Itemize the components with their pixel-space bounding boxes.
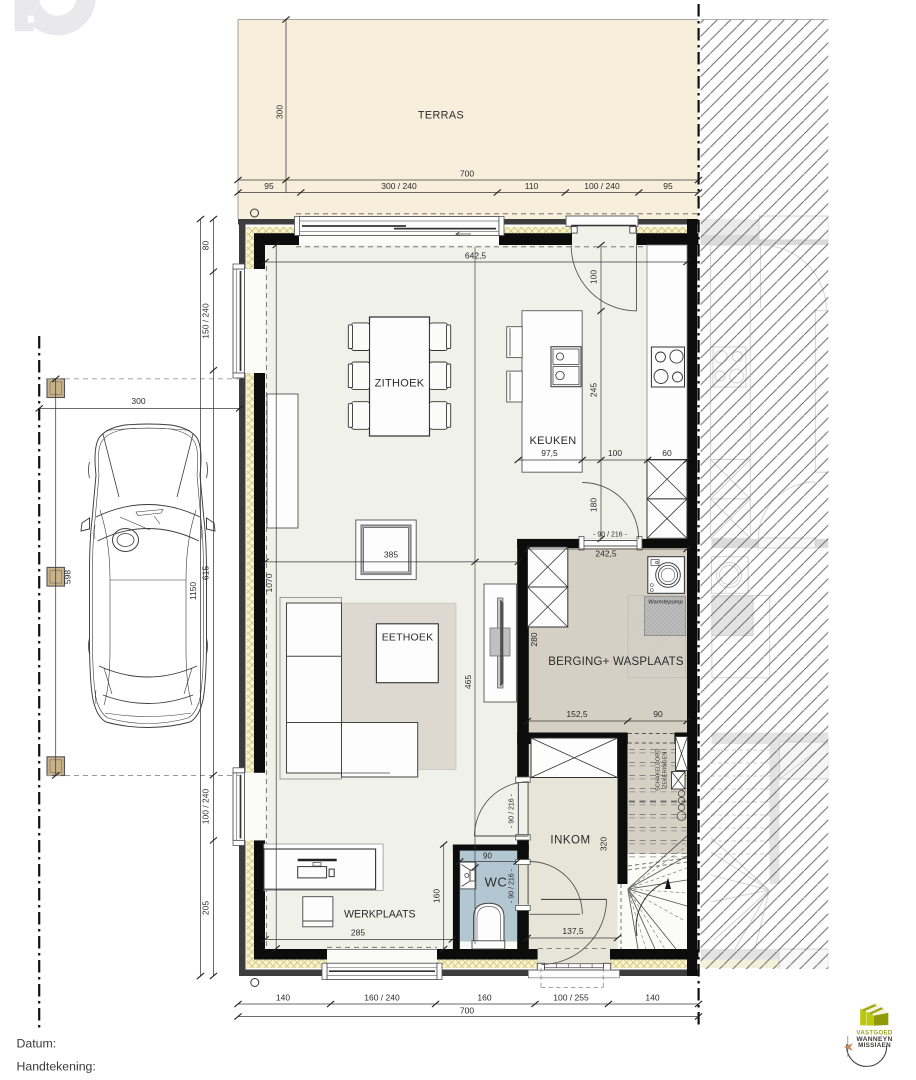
svg-text:160: 160 <box>431 889 441 903</box>
svg-text:700: 700 <box>460 1006 474 1016</box>
svg-text:150 / 240: 150 / 240 <box>201 303 211 339</box>
svg-text:300 / 240: 300 / 240 <box>381 181 417 191</box>
svg-text:615: 615 <box>201 566 211 580</box>
svg-text:465: 465 <box>463 675 473 689</box>
svg-text:205: 205 <box>201 901 211 915</box>
svg-text:700: 700 <box>460 169 474 179</box>
svg-text:140: 140 <box>276 993 290 1003</box>
svg-text:WC: WC <box>485 875 508 890</box>
svg-text:INKOM: INKOM <box>550 835 590 847</box>
svg-text:300: 300 <box>275 105 285 119</box>
svg-text:100 / 255: 100 / 255 <box>553 993 589 1003</box>
svg-text:180: 180 <box>589 498 599 512</box>
svg-text:160: 160 <box>477 993 491 1003</box>
svg-text:EETHOEK: EETHOEK <box>382 632 434 644</box>
svg-text:642,5: 642,5 <box>465 251 487 261</box>
svg-text:Handtekening:: Handtekening: <box>17 1060 96 1074</box>
svg-text:320: 320 <box>599 837 609 851</box>
svg-text:90: 90 <box>653 709 663 719</box>
svg-text:WERKPLAATS: WERKPLAATS <box>344 909 416 921</box>
svg-text:100 / 240: 100 / 240 <box>201 789 211 825</box>
svg-text:285: 285 <box>351 928 365 938</box>
svg-text:KEUKEN: KEUKEN <box>529 435 576 447</box>
svg-text:ZEKERINGEN: ZEKERINGEN <box>663 752 669 788</box>
svg-text:140: 140 <box>645 993 659 1003</box>
svg-text:- 90 / 216 -: - 90 / 216 - <box>509 868 516 903</box>
svg-text:100: 100 <box>608 448 622 458</box>
svg-text:137,5: 137,5 <box>562 926 584 936</box>
svg-text:280: 280 <box>529 632 539 646</box>
svg-text:Warmtepomp: Warmtepomp <box>648 600 683 606</box>
svg-text:598: 598 <box>63 570 73 584</box>
svg-text:- 90 / 216 -: - 90 / 216 - <box>593 532 628 539</box>
svg-text:ZITHOEK: ZITHOEK <box>375 378 425 390</box>
svg-text:100: 100 <box>589 270 599 284</box>
svg-text:245: 245 <box>589 383 599 397</box>
svg-text:385: 385 <box>384 550 398 560</box>
svg-text:160 / 240: 160 / 240 <box>364 993 400 1003</box>
svg-text:- 90 / 216 -: - 90 / 216 - <box>509 793 516 828</box>
svg-text:1150: 1150 <box>188 582 198 601</box>
svg-text:TERRAS: TERRAS <box>418 110 464 122</box>
svg-text:95: 95 <box>264 181 274 191</box>
svg-text:300: 300 <box>131 396 145 406</box>
svg-text:110: 110 <box>525 181 539 191</box>
svg-text:152,5: 152,5 <box>566 709 588 719</box>
svg-text:100 / 240: 100 / 240 <box>584 181 620 191</box>
svg-text:95: 95 <box>663 181 673 191</box>
svg-text:60: 60 <box>662 448 672 458</box>
svg-text:SCHAKELBORD: SCHAKELBORD <box>656 749 662 791</box>
svg-text:242,5: 242,5 <box>595 549 617 559</box>
svg-text:97,5: 97,5 <box>541 448 558 458</box>
svg-text:BERGING+ WASPLAATS: BERGING+ WASPLAATS <box>548 656 684 668</box>
svg-text:1070: 1070 <box>264 573 274 592</box>
svg-text:Datum:: Datum: <box>17 1037 57 1051</box>
svg-text:80: 80 <box>201 241 211 251</box>
svg-text:90: 90 <box>483 852 492 861</box>
